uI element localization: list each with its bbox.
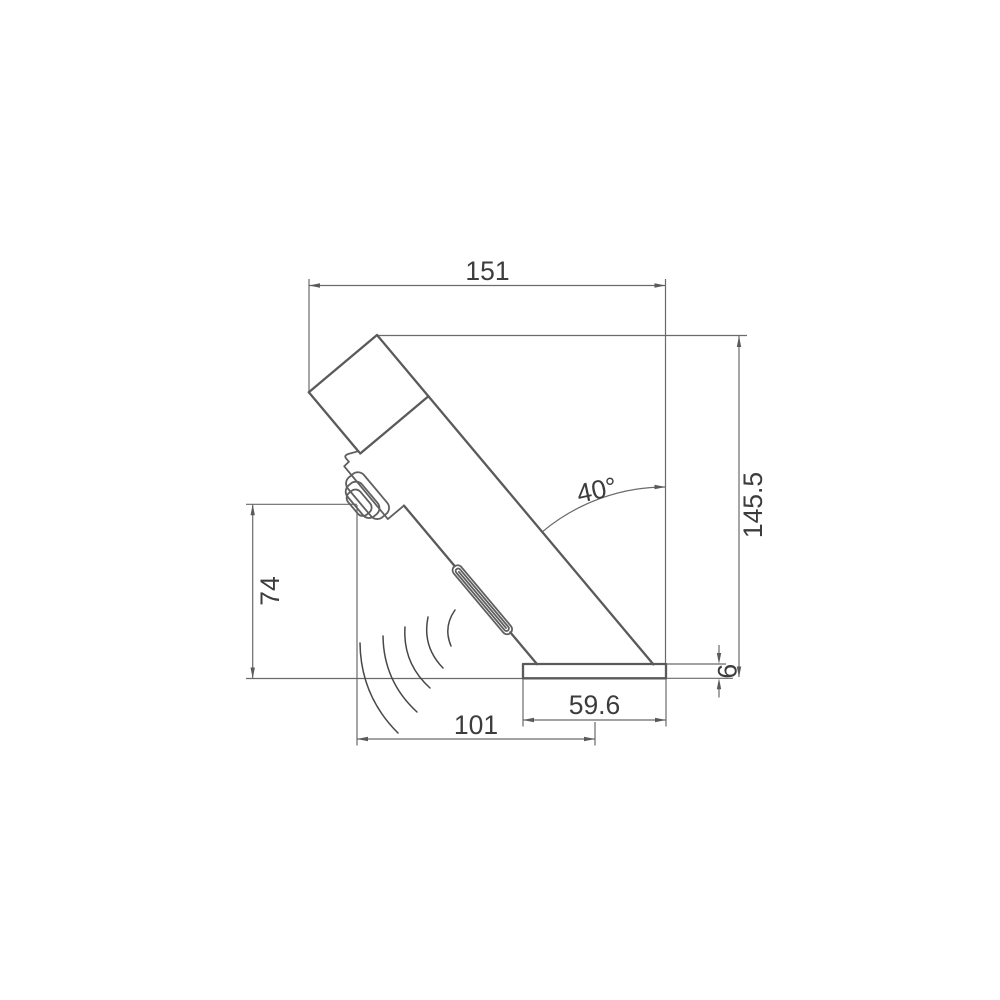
- dim-overall-height-label: 145.5: [738, 472, 768, 538]
- dim-top-width: 151: [309, 256, 666, 392]
- arrowhead: [523, 718, 534, 722]
- faucet-dimension-drawing: 151 145.5 6 74 101: [0, 0, 1000, 1000]
- back-edge-lower: [510, 632, 537, 664]
- dim-spout-angle-label: 40°: [574, 471, 619, 509]
- arrowhead: [251, 668, 255, 679]
- arrowhead: [717, 653, 721, 664]
- dim-top-width-label: 151: [465, 256, 509, 286]
- arrowhead: [737, 336, 741, 347]
- dim-spout-angle: 40°: [542, 471, 665, 532]
- sensor-wave-arc: [448, 610, 455, 646]
- dim-base-width-label: 59.6: [569, 690, 621, 720]
- sensor-wave-arc: [360, 643, 398, 733]
- dim-sensor-reach-label: 101: [454, 710, 498, 740]
- sensor-wave-arc: [427, 617, 443, 668]
- dim-base-width: 59.6: [523, 679, 666, 727]
- arrowhead: [584, 737, 595, 741]
- faucet-body: [278, 335, 654, 748]
- arrowhead: [357, 737, 368, 741]
- cap-divider-line: [360, 396, 428, 453]
- dim-overall-height: 145.5: [737, 336, 768, 678]
- dim-outlet-height-label: 74: [255, 576, 285, 605]
- arrowhead: [251, 504, 255, 515]
- arrowhead: [655, 485, 666, 489]
- sensor-waves: [360, 610, 455, 733]
- arrowhead: [655, 718, 666, 722]
- back-edge-middle: [404, 506, 455, 567]
- dim-base-thickness-label: 6: [713, 664, 743, 679]
- arrowhead: [309, 283, 320, 287]
- drawing-canvas: 151 145.5 6 74 101: [0, 0, 1000, 1000]
- aerator-ring-middle: [342, 478, 382, 521]
- dim-sensor-reach: 101: [357, 505, 595, 746]
- arrowhead: [717, 678, 721, 689]
- sensor-window-line: [459, 572, 506, 628]
- dim-base-thickness: 6: [666, 645, 743, 698]
- arrowhead: [655, 283, 666, 287]
- back-edge-upper: [309, 392, 359, 452]
- base-plate: [523, 664, 666, 678]
- sensor-wave-arc: [383, 636, 417, 712]
